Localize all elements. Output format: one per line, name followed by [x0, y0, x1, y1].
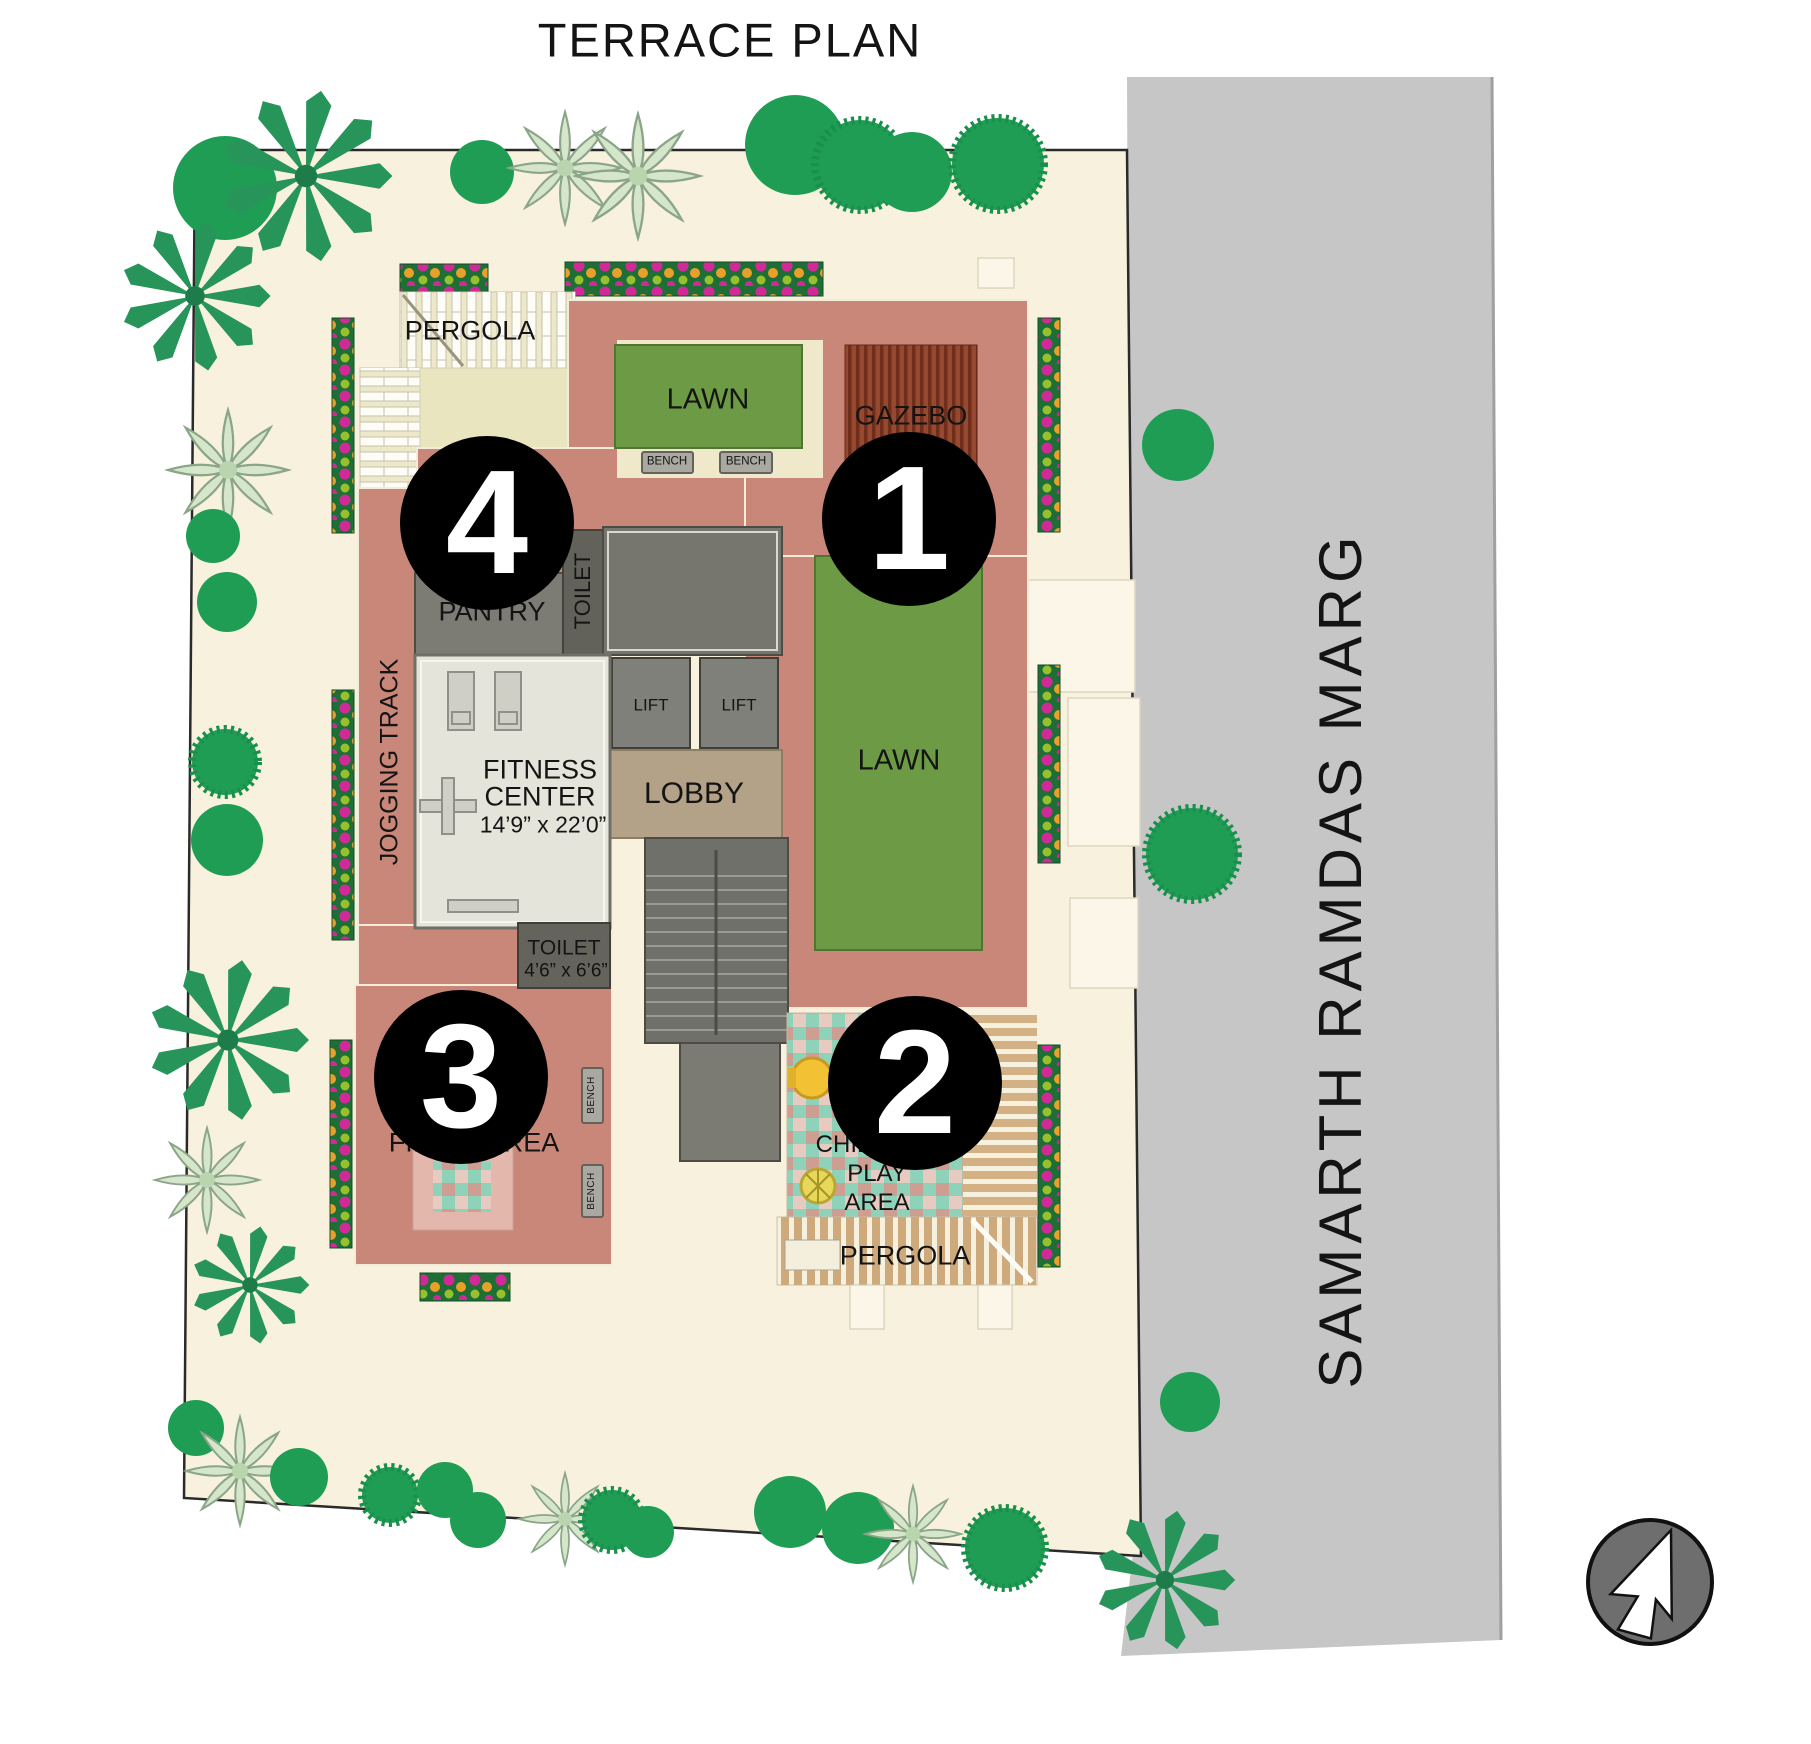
- fitness-center-dims: 14’9” x 22’0”: [480, 814, 607, 837]
- tree-icon: [754, 1476, 826, 1548]
- star-plant-icon: [576, 114, 700, 238]
- fiesta-centerpiece-mat: [433, 1162, 491, 1212]
- road-name-label: SAMARTH RAMDAS MARG: [1311, 531, 1371, 1388]
- stair-landing-block: [680, 1043, 780, 1161]
- star-plant-icon: [865, 1486, 961, 1582]
- star-plant-icon: [155, 1128, 259, 1232]
- play-toy-1: [792, 1058, 832, 1098]
- tree-icon: [270, 1448, 328, 1506]
- marker-3: 3: [374, 990, 548, 1164]
- bench-label: BENCH: [726, 456, 766, 468]
- tree-icon: [450, 140, 514, 204]
- staircase: [645, 838, 788, 1043]
- shrub-icon: [362, 1467, 418, 1523]
- toilet-top-label: TOILET: [572, 553, 594, 630]
- bench-side-label: BENCH: [587, 1076, 597, 1114]
- tree-icon: [622, 1506, 674, 1558]
- toilet-bottom-label: TOILET: [527, 938, 600, 959]
- pergola-top-label: PERGOLA: [405, 318, 536, 345]
- north-arrow-icon: [1588, 1518, 1712, 1647]
- play-toy-1-base: [788, 1068, 796, 1088]
- pergola-bottom-label: PERGOLA: [840, 1243, 971, 1270]
- marker-4: 4: [400, 436, 574, 610]
- bench-side-label: BENCH: [587, 1172, 597, 1210]
- bench-label: BENCH: [647, 456, 687, 468]
- fitness-center-label-2: CENTER: [484, 784, 595, 811]
- lift-label: LIFT: [722, 697, 757, 714]
- lift-label: LIFT: [634, 697, 669, 714]
- terrace-plan-page: TERRACE PLAN SAMARTH RAMDAS MARG PERGOLA…: [0, 0, 1811, 1744]
- toilet-bottom-dims: 4’6” x 6’6”: [524, 962, 607, 981]
- tree-icon: [197, 572, 257, 632]
- tree-icon: [1142, 409, 1214, 481]
- tree-icon: [1160, 1372, 1220, 1432]
- tree-icon: [450, 1492, 506, 1548]
- tree-icon: [186, 509, 240, 563]
- children-play-label-3: AREA: [844, 1191, 909, 1215]
- shrub-icon: [192, 729, 258, 795]
- gazebo-label: GAZEBO: [855, 403, 968, 430]
- tree-icon: [872, 132, 952, 212]
- shrub-icon: [952, 118, 1044, 210]
- shrub-icon: [1146, 808, 1238, 900]
- fitness-center-label-1: FITNESS: [483, 757, 597, 784]
- terrace-plan-graphic: [0, 0, 1811, 1744]
- star-plant-icon: [168, 410, 288, 530]
- tree-icon: [191, 804, 263, 876]
- jogging-track-label: JOGGING TRACK: [378, 659, 403, 866]
- lawn-top-label: LAWN: [667, 386, 750, 415]
- lawn-strip-label: LAWN: [858, 747, 941, 776]
- marker-1: 1: [822, 432, 996, 606]
- room-utility: [603, 527, 782, 655]
- shrub-icon: [965, 1508, 1045, 1588]
- page-title: TERRACE PLAN: [538, 17, 922, 64]
- lobby-label: LOBBY: [644, 779, 744, 809]
- marker-2: 2: [828, 996, 1002, 1170]
